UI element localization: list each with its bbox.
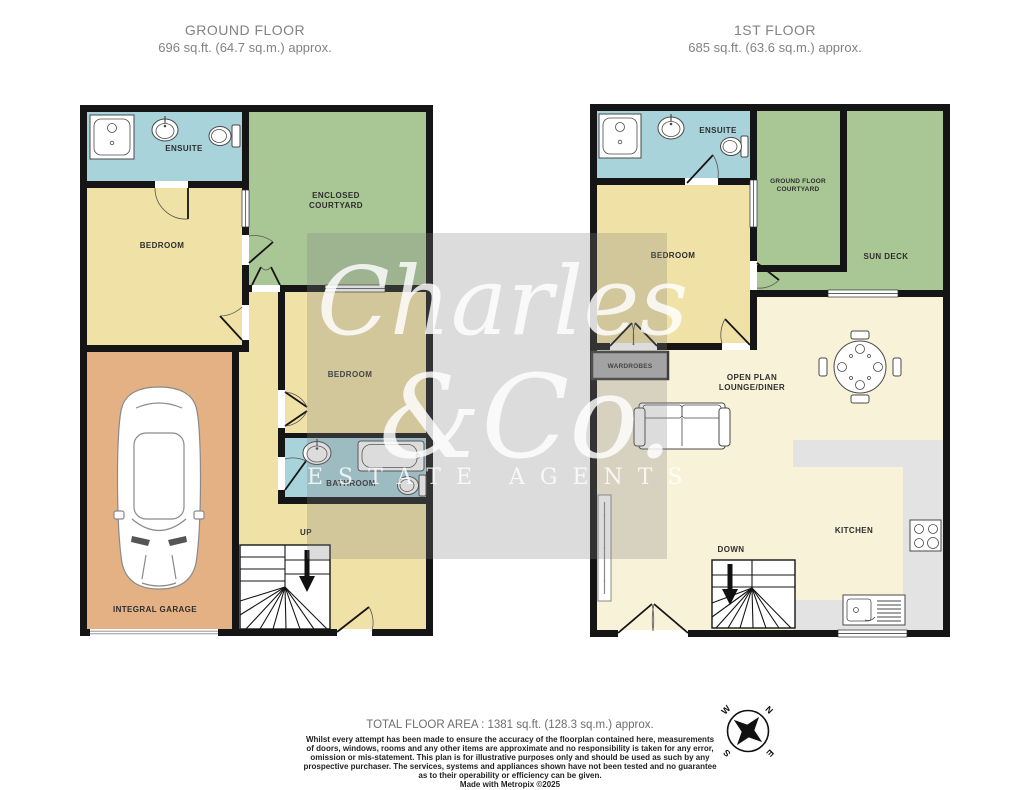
disclaimer-line-1: Whilst every attempt has been made to en… [250,735,770,744]
disclaimer-line-5: as to their operability or efficiency ca… [250,771,770,780]
bedroom2-window [325,285,385,292]
gf-courtyard-label-1: GROUND FLOOR [770,178,826,185]
ground-floor-title: GROUND FLOOR [70,22,420,38]
total-floor-area: TOTAL FLOOR AREA : 1381 sq.ft. (128.3 sq… [250,719,770,731]
compass-w: W [719,703,732,716]
ff-wall-ensuite-bottom [597,178,757,185]
compass-n: N [763,704,775,716]
toilet-icon [209,125,240,147]
ff-wall-courtyard-right [840,111,847,272]
stairs-up [240,545,330,629]
lounge-window [828,290,898,297]
metropix-credit: Made with Metropix ©2025 [250,780,770,790]
shower-icon [90,115,134,159]
ff-bedroom-window [750,180,757,227]
lounge-label-2: LOUNGE/DINER [719,383,785,392]
sofa-icon [634,403,730,449]
ff-toilet-icon [721,136,749,157]
wardrobes-label: WARDROBES [608,363,653,370]
up-label: UP [300,528,312,537]
garage-door [90,629,218,636]
first-floor-plan: ENSUITE GROUND FLOOR COURTYARD SUN DECK … [585,95,965,650]
ground-floor-plan: ENSUITE ENCLOSED COURTYARD BEDROOM BEDRO… [70,95,440,645]
bedroom2-label: BEDROOM [328,370,373,379]
wall-right [426,105,433,636]
floorplan-page: { "header_ground": { "title": "GROUND FL… [0,0,1020,785]
gf-courtyard-label-2: COURTYARD [777,186,820,193]
wall-garage-right [232,352,239,629]
bedroom1-floor [87,188,242,345]
kitchen-counter-top [793,440,943,467]
car-icon [114,387,204,589]
wall-left [80,105,87,636]
sink-icon [843,595,905,625]
disclaimer-line-2: of doors, windows, rooms and any other i… [250,744,770,753]
hob-icon [910,520,941,551]
courtyard-label-2: COURTYARD [309,201,363,210]
kitchen-window [838,630,907,637]
first-floor-title: 1ST FLOOR [585,22,965,38]
ff-bedroom-label: BEDROOM [651,251,696,260]
ff-wall-right [943,104,950,637]
first-floor-header: 1ST FLOOR 685 sq.ft. (63.6 sq.m.) approx… [585,22,965,55]
stairs-down [712,560,795,628]
wall-bathroom-bottom [278,497,426,504]
footer: TOTAL FLOOR AREA : 1381 sq.ft. (128.3 sq… [250,719,770,790]
lounge-label-1: OPEN PLAN [727,373,777,382]
ff-wall-top [590,104,950,111]
sundeck-label: SUN DECK [864,252,909,261]
garage-label: INTEGRAL GARAGE [113,605,197,614]
wall-bedroom2-bathroom [278,433,426,438]
radiator-icon [598,495,611,601]
ground-floor-area: 696 sq.ft. (64.7 sq.m.) approx. [70,40,420,55]
courtyard-label-1: ENCLOSED [312,191,360,200]
wall-bedroom-bottom [80,345,249,352]
disclaimer-line-3: omission or mis-statement. This plan is … [250,753,770,762]
wall-top [80,105,433,112]
ff-shower-icon [599,114,641,158]
ff-wall-bedroom-right [750,111,757,350]
ensuite-label: ENSUITE [165,144,203,153]
bedroom-courtyard-window [242,190,249,227]
ff-bedroom-floor [597,185,750,343]
bathtub-icon [358,441,424,471]
first-floor-area: 685 sq.ft. (63.6 sq.m.) approx. [585,40,965,55]
kitchen-label: KITCHEN [835,526,873,535]
ground-floor-header: GROUND FLOOR 696 sq.ft. (64.7 sq.m.) app… [70,22,420,55]
bedroom1-label: BEDROOM [140,241,185,250]
down-label: DOWN [718,545,745,554]
ff-ensuite-label: ENSUITE [699,126,737,135]
bathroom-label: BATHROOM [326,479,376,488]
disclaimer-line-4: prospective purchaser. The services, sys… [250,762,770,771]
bathroom-toilet-icon [398,475,427,496]
